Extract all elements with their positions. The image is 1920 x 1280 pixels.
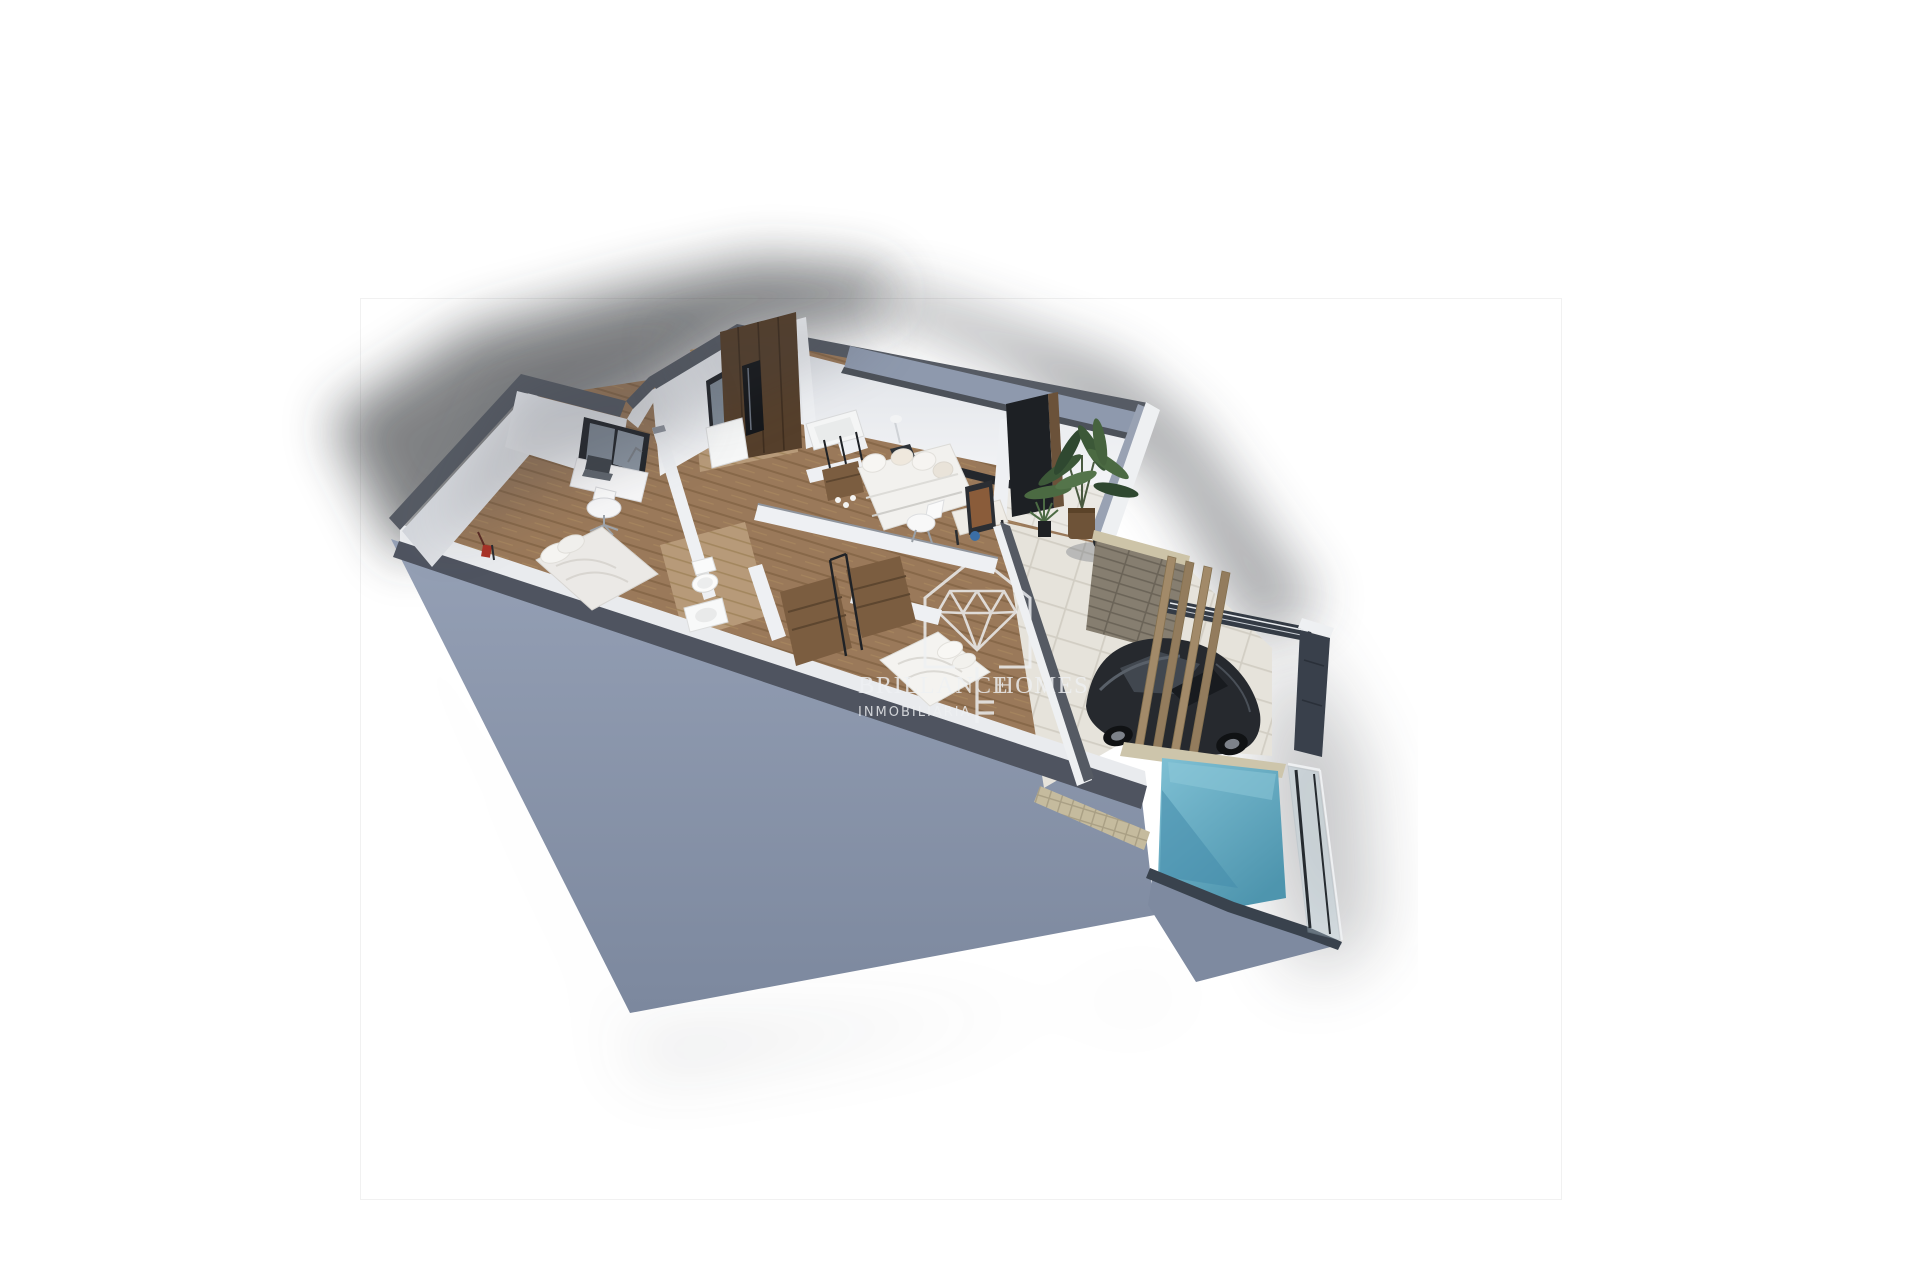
screenshot-root: BRILLANCE HOMES INMOBILIARIA — [0, 0, 1920, 1280]
watermark-brand-word-2: HOMES — [996, 672, 1089, 699]
watermark-brand-word-1: BRILLANCE — [858, 672, 1009, 699]
globe — [970, 531, 980, 541]
small-plant-pot — [1038, 521, 1051, 537]
floor-plan-3d-render: BRILLANCE HOMES INMOBILIARIA — [0, 0, 1920, 1280]
watermark-subtitle: INMOBILIARIA — [858, 705, 972, 720]
